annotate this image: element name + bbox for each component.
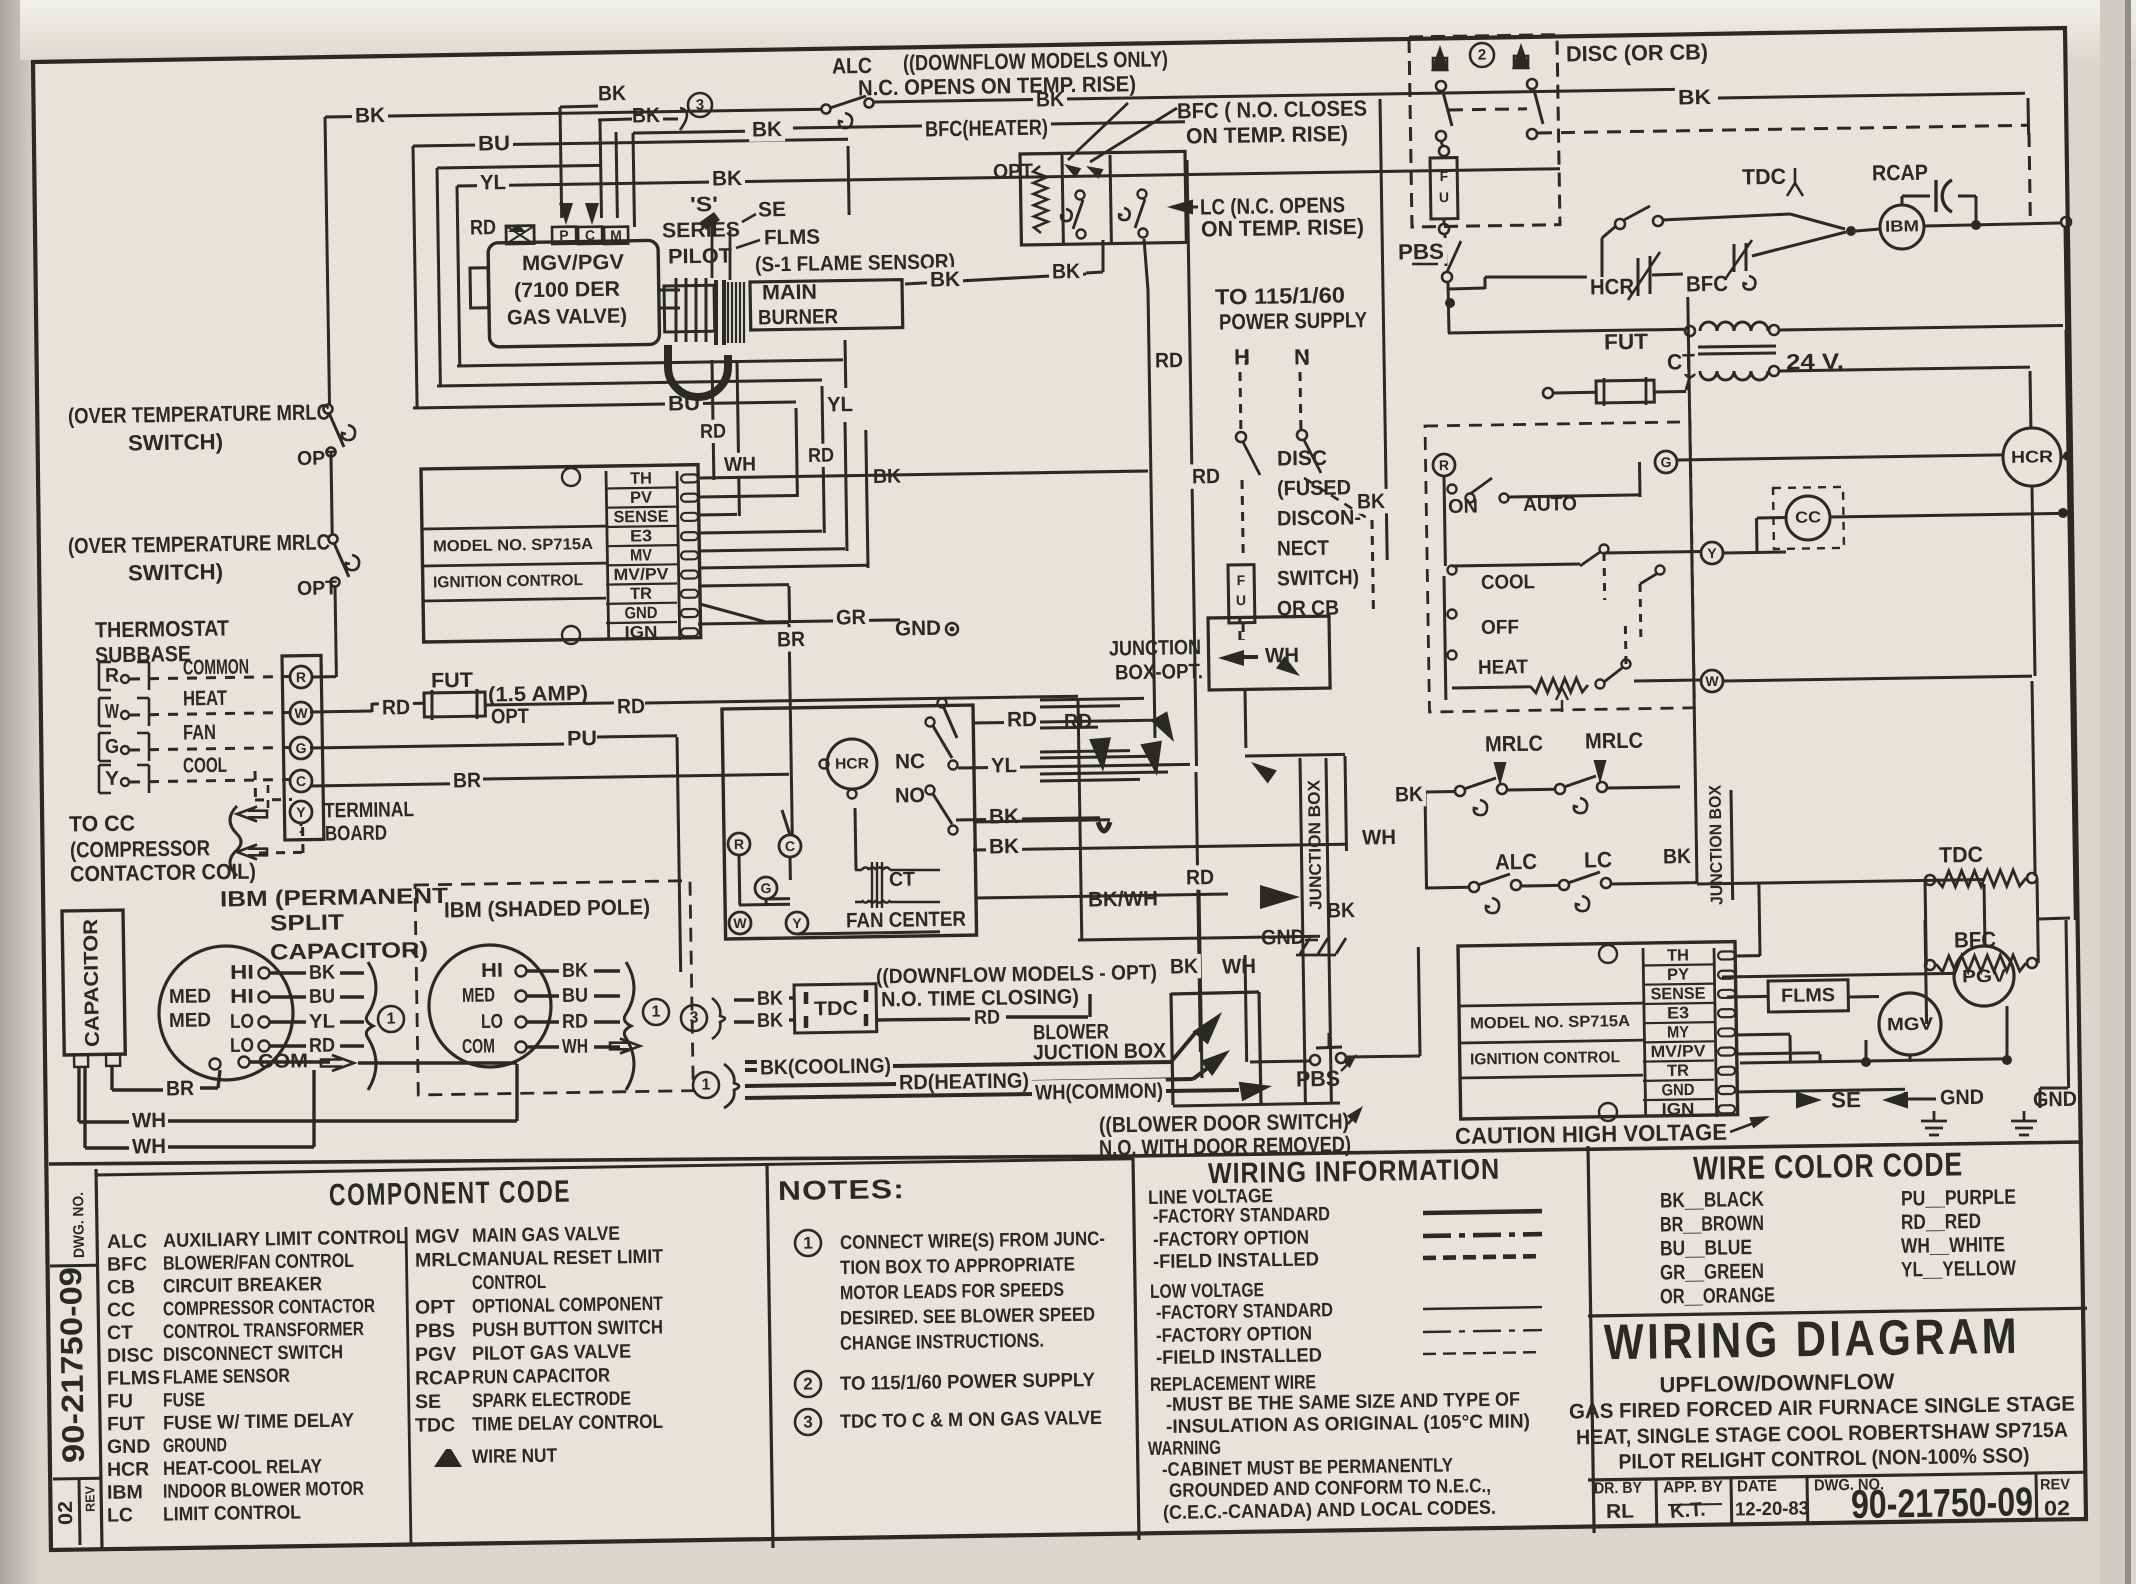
svg-text:ALC: ALC <box>107 1230 147 1253</box>
svg-text:BFC ( N.O. CLOSES: BFC ( N.O. CLOSES <box>1177 96 1367 124</box>
svg-text:W: W <box>105 701 119 723</box>
svg-text:DISC (OR CB): DISC (OR CB) <box>1566 39 1708 66</box>
svg-text:NO: NO <box>895 784 925 807</box>
svg-text:DATE: DATE <box>1737 1478 1778 1496</box>
svg-text:GR__GREEN: GR__GREEN <box>1660 1260 1764 1285</box>
svg-text:FU: FU <box>107 1390 133 1412</box>
svg-text:CC: CC <box>107 1299 136 1321</box>
svg-text:GND: GND <box>107 1436 151 1459</box>
svg-text:RD: RD <box>974 1007 1000 1029</box>
svg-text:LIMIT CONTROL: LIMIT CONTROL <box>163 1501 301 1525</box>
svg-text:GND: GND <box>895 617 941 641</box>
svg-text:WH(COMMON): WH(COMMON) <box>1035 1079 1163 1104</box>
svg-text:N.C. OPENS ON TEMP. RISE): N.C. OPENS ON TEMP. RISE) <box>858 71 1136 100</box>
svg-text:RD: RD <box>470 216 496 239</box>
svg-text:C: C <box>785 838 795 854</box>
svg-text:MED: MED <box>169 985 211 1008</box>
svg-text:RUN CAPACITOR: RUN CAPACITOR <box>472 1364 610 1388</box>
svg-text:OPT: OPT <box>993 160 1033 183</box>
svg-text:TH: TH <box>1667 946 1689 964</box>
svg-text:HI: HI <box>481 960 503 982</box>
svg-text:IBM: IBM <box>107 1481 143 1504</box>
svg-text:TO CC: TO CC <box>69 810 135 836</box>
svg-text:-FACTORY OPTION: -FACTORY OPTION <box>1153 1227 1309 1251</box>
svg-text:WH: WH <box>562 1036 588 1058</box>
svg-text:MODEL NO. SP715A: MODEL NO. SP715A <box>433 536 594 556</box>
svg-text:CT: CT <box>889 869 915 891</box>
svg-text:DISC: DISC <box>1277 447 1327 471</box>
svg-text:MRLC: MRLC <box>1485 731 1543 757</box>
svg-text:LO: LO <box>230 1011 254 1033</box>
svg-text:PBS: PBS <box>1398 239 1444 265</box>
svg-text:CAPACITOR: CAPACITOR <box>80 918 104 1047</box>
svg-text:Y: Y <box>792 915 802 931</box>
svg-text:WH: WH <box>1362 826 1396 850</box>
svg-text:C: C <box>296 773 306 789</box>
svg-text:NC: NC <box>895 750 925 773</box>
svg-text:PU: PU <box>567 727 597 750</box>
svg-text:FUSE W/ TIME DELAY: FUSE W/ TIME DELAY <box>163 1409 354 1434</box>
svg-text:RD: RD <box>617 695 645 718</box>
svg-text:MRLC: MRLC <box>1585 728 1643 754</box>
svg-text:(COMPRESSOR: (COMPRESSOR <box>70 835 210 862</box>
svg-text:LOW VOLTAGE: LOW VOLTAGE <box>1150 1279 1264 1303</box>
svg-text:DESIRED. SEE BLOWER SPEED: DESIRED. SEE BLOWER SPEED <box>840 1304 1095 1330</box>
svg-text:HCR: HCR <box>2011 447 2053 467</box>
svg-text:PV: PV <box>630 489 652 507</box>
svg-text:U: U <box>1439 189 1449 205</box>
svg-text:ON TEMP. RISE): ON TEMP. RISE) <box>1186 121 1348 149</box>
svg-text:PBS: PBS <box>1296 1066 1340 1092</box>
svg-text:OPT: OPT <box>297 447 337 470</box>
svg-text:NOTES:: NOTES: <box>778 1174 905 1206</box>
svg-text:SWITCH): SWITCH) <box>128 429 223 455</box>
svg-text:BK: BK <box>873 466 902 488</box>
svg-text:F: F <box>1237 572 1246 588</box>
svg-text:R: R <box>734 836 744 852</box>
svg-text:TDC: TDC <box>415 1414 455 1437</box>
svg-text:CHANGE INSTRUCTIONS.: CHANGE INSTRUCTIONS. <box>840 1330 1044 1355</box>
svg-text:ALC: ALC <box>1495 849 1537 875</box>
svg-text:HEAT-COOL RELAY: HEAT-COOL RELAY <box>163 1456 322 1480</box>
svg-text:YL: YL <box>991 754 1018 777</box>
svg-text:TDC: TDC <box>1742 164 1786 190</box>
svg-text:TION BOX TO APPROPRIATE: TION BOX TO APPROPRIATE <box>840 1254 1075 1280</box>
svg-text:WH: WH <box>724 453 756 475</box>
svg-text:AUXILIARY LIMIT CONTROL: AUXILIARY LIMIT CONTROL <box>163 1226 407 1252</box>
svg-text:WH: WH <box>132 1109 166 1133</box>
svg-text:TERMINAL: TERMINAL <box>324 798 414 822</box>
svg-text:N: N <box>1294 344 1310 369</box>
svg-text:SWITCH): SWITCH) <box>1277 566 1359 590</box>
svg-text:TDC TO C & M ON GAS VALVE: TDC TO C & M ON GAS VALVE <box>840 1407 1102 1433</box>
svg-text:UPFLOW/DOWNFLOW: UPFLOW/DOWNFLOW <box>1659 1369 1895 1398</box>
svg-text:IGNITION CONTROL: IGNITION CONTROL <box>1470 1049 1620 1068</box>
svg-text:PY: PY <box>1667 966 1689 984</box>
svg-text:CONTROL TRANSFORMER: CONTROL TRANSFORMER <box>163 1318 364 1343</box>
svg-text:RCAP: RCAP <box>415 1367 471 1390</box>
svg-text:DISCONNECT SWITCH: DISCONNECT SWITCH <box>163 1341 343 1366</box>
svg-text:R: R <box>105 665 120 687</box>
svg-text:CB: CB <box>107 1276 136 1298</box>
svg-text:JUNCTION: JUNCTION <box>1109 636 1201 660</box>
svg-text:G: G <box>105 736 119 758</box>
svg-text:MED: MED <box>462 984 495 1007</box>
svg-text:BK: BK <box>598 82 626 105</box>
svg-text:R: R <box>1439 457 1449 473</box>
svg-text:OPT: OPT <box>491 705 530 729</box>
svg-text:SPLIT: SPLIT <box>270 909 345 935</box>
svg-text:3: 3 <box>689 1009 698 1026</box>
svg-text:RD: RD <box>1155 349 1183 372</box>
svg-text:W: W <box>733 915 747 931</box>
svg-text:YL: YL <box>827 393 854 416</box>
svg-text:BK: BK <box>930 268 960 291</box>
svg-text:1: 1 <box>386 1010 395 1027</box>
svg-text:GND: GND <box>624 604 657 623</box>
svg-text:BOX-OPT.: BOX-OPT. <box>1115 660 1203 684</box>
svg-text:PGV: PGV <box>415 1343 457 1366</box>
svg-text:FLMS: FLMS <box>107 1367 160 1390</box>
svg-text:3: 3 <box>696 96 705 113</box>
svg-text:POWER SUPPLY: POWER SUPPLY <box>1219 307 1368 334</box>
svg-text:CAPACITOR): CAPACITOR) <box>270 937 428 964</box>
svg-text:-FACTORY STANDARD: -FACTORY STANDARD <box>1153 1203 1330 1228</box>
svg-text:COMPONENT CODE: COMPONENT CODE <box>329 1174 572 1213</box>
svg-text:R: R <box>296 669 306 685</box>
svg-text:WH: WH <box>132 1135 166 1159</box>
svg-text:C: C <box>585 227 595 243</box>
svg-text:OPT: OPT <box>415 1296 456 1319</box>
svg-text:BR: BR <box>166 1077 194 1100</box>
svg-text:WIRING DIAGRAM: WIRING DIAGRAM <box>1604 1308 2021 1371</box>
svg-text:Y: Y <box>105 768 120 790</box>
svg-text:FLMS: FLMS <box>764 226 820 250</box>
svg-text:DISC: DISC <box>107 1344 154 1367</box>
svg-text:CONTACTOR COIL): CONTACTOR COIL) <box>70 859 256 887</box>
svg-text:YL: YL <box>480 171 507 194</box>
svg-text:INDOOR BLOWER MOTOR: INDOOR BLOWER MOTOR <box>163 1478 364 1503</box>
svg-text:REV: REV <box>2040 1476 2070 1493</box>
svg-text:TR: TR <box>1667 1062 1689 1080</box>
svg-text:((DOWNFLOW MODELS - OPT): ((DOWNFLOW MODELS - OPT) <box>876 961 1157 988</box>
svg-text:02: 02 <box>55 1501 77 1525</box>
svg-text:COOL: COOL <box>183 754 227 778</box>
svg-text:MAIN GAS VALVE: MAIN GAS VALVE <box>472 1223 620 1247</box>
svg-text:LC: LC <box>1584 847 1612 872</box>
svg-text:HEAT: HEAT <box>1478 656 1528 679</box>
svg-text:HEAT: HEAT <box>183 687 227 711</box>
svg-text:LC: LC <box>107 1504 133 1526</box>
svg-text:ON TEMP. RISE): ON TEMP. RISE) <box>1201 214 1364 242</box>
svg-text:COMMON: COMMON <box>183 655 249 679</box>
svg-text:RL: RL <box>1606 1501 1634 1523</box>
svg-text:-FACTORY OPTION: -FACTORY OPTION <box>1156 1323 1312 1347</box>
svg-text:IGNITION CONTROL: IGNITION CONTROL <box>433 572 583 591</box>
svg-text:E3: E3 <box>630 527 652 545</box>
svg-text:BK: BK <box>712 167 742 190</box>
svg-text:E3: E3 <box>1667 1004 1689 1022</box>
svg-text:BK/WH: BK/WH <box>1088 887 1158 911</box>
svg-text:-FIELD INSTALLED: -FIELD INSTALLED <box>1156 1344 1322 1369</box>
svg-text:DISCON-: DISCON- <box>1277 506 1361 530</box>
svg-text:RD(HEATING): RD(HEATING) <box>899 1069 1029 1094</box>
svg-text:THERMOSTAT: THERMOSTAT <box>95 615 230 642</box>
svg-text:BU: BU <box>478 132 510 155</box>
svg-text:TH: TH <box>630 469 652 487</box>
svg-text:G: G <box>760 880 771 896</box>
svg-text:F: F <box>1440 168 1449 184</box>
svg-text:DWG. NO.: DWG. NO. <box>70 1192 88 1258</box>
svg-text:BK: BK <box>989 805 1019 828</box>
svg-text:OPTIONAL COMPONENT: OPTIONAL COMPONENT <box>472 1293 663 1318</box>
svg-text:CONTROL: CONTROL <box>472 1271 546 1294</box>
svg-text:TO 115/1/60: TO 115/1/60 <box>1215 282 1345 309</box>
svg-text:BFC: BFC <box>107 1253 147 1276</box>
svg-text:RD: RD <box>309 1035 335 1057</box>
svg-text:BK: BK <box>632 104 660 127</box>
svg-text:BR: BR <box>777 628 805 651</box>
svg-text:SE: SE <box>1831 1087 1861 1112</box>
svg-text:HCR: HCR <box>1590 274 1634 300</box>
svg-text:PBS: PBS <box>415 1320 455 1343</box>
svg-text:FUT: FUT <box>431 669 474 693</box>
svg-text:FUSE: FUSE <box>163 1389 205 1412</box>
svg-text:MRLC: MRLC <box>415 1249 472 1272</box>
svg-text:MV: MV <box>630 546 652 564</box>
svg-text:BK: BK <box>1663 845 1691 868</box>
svg-text:PILOT GAS VALVE: PILOT GAS VALVE <box>472 1341 631 1365</box>
svg-text:CT: CT <box>1667 349 1696 374</box>
svg-text:TDC: TDC <box>1939 842 1983 868</box>
svg-text:BK: BK <box>989 835 1019 858</box>
svg-text:SUBBASE: SUBBASE <box>95 641 191 668</box>
svg-text:1: 1 <box>803 1233 813 1252</box>
svg-text:NECT: NECT <box>1277 537 1330 561</box>
svg-text:12-20-83: 12-20-83 <box>1735 1498 1809 1520</box>
svg-text:GR: GR <box>836 606 866 629</box>
svg-text:BK: BK <box>1170 955 1198 978</box>
svg-text:K.T.: K.T. <box>1669 1499 1706 1523</box>
svg-text:IGN: IGN <box>1661 1100 1694 1119</box>
svg-text:BK: BK <box>1327 899 1355 922</box>
svg-text:N.O. WITH DOOR REMOVED): N.O. WITH DOOR REMOVED) <box>1099 1132 1351 1161</box>
svg-text:COMPRESSOR CONTACTOR: COMPRESSOR CONTACTOR <box>163 1295 375 1320</box>
svg-text:RD: RD <box>382 696 410 719</box>
svg-text:Y: Y <box>1707 545 1717 561</box>
svg-text:3: 3 <box>803 1412 813 1431</box>
svg-text:MED: MED <box>169 1009 211 1032</box>
svg-text:RD: RD <box>700 421 726 443</box>
svg-text:(7100 DER: (7100 DER <box>514 278 620 303</box>
svg-text:BK(COOLING): BK(COOLING) <box>760 1054 891 1079</box>
svg-text:FAN CENTER: FAN CENTER <box>846 908 966 933</box>
svg-text:90-21750-09: 90-21750-09 <box>53 1267 91 1464</box>
svg-text:(S-1 FLAME SENSOR): (S-1 FLAME SENSOR) <box>755 250 955 276</box>
svg-text:GND: GND <box>1261 926 1305 950</box>
svg-text:YL__YELLOW: YL__YELLOW <box>1901 1257 2016 1282</box>
svg-text:LO: LO <box>481 1011 503 1033</box>
svg-text:CC: CC <box>1795 509 1822 526</box>
svg-text:BK: BK <box>1678 86 1711 110</box>
svg-text:(OVER TEMPERATURE MRLC: (OVER TEMPERATURE MRLC <box>68 529 330 558</box>
svg-text:BK: BK <box>1395 783 1423 806</box>
svg-text:(FUSED: (FUSED <box>1277 476 1351 500</box>
svg-text:WARNING: WARNING <box>1148 1437 1221 1460</box>
svg-text:SENSE: SENSE <box>613 508 668 527</box>
svg-text:MODEL NO. SP715A: MODEL NO. SP715A <box>1470 1013 1631 1033</box>
svg-text:FLMS: FLMS <box>1781 985 1835 1007</box>
svg-text:REV: REV <box>82 1486 97 1513</box>
svg-text:MOTOR LEADS FOR SPEEDS: MOTOR LEADS FOR SPEEDS <box>840 1279 1064 1305</box>
svg-text:BFC: BFC <box>1686 271 1728 297</box>
svg-text:RCAP: RCAP <box>1872 160 1928 186</box>
svg-text:2: 2 <box>1478 46 1487 63</box>
svg-text:G: G <box>295 740 306 756</box>
svg-text:BU__BLUE: BU__BLUE <box>1660 1236 1752 1260</box>
svg-text:BK: BK <box>1357 490 1385 513</box>
svg-text:(OVER TEMPERATURE MRLC: (OVER TEMPERATURE MRLC <box>68 399 330 428</box>
svg-text:CIRCUIT BREAKER: CIRCUIT BREAKER <box>163 1273 322 1297</box>
svg-text:APP. BY: APP. BY <box>1663 1479 1724 1497</box>
svg-text:IBM: IBM <box>1885 218 1919 236</box>
svg-text:COM: COM <box>462 1035 495 1058</box>
svg-text:OR__ORANGE: OR__ORANGE <box>1660 1284 1775 1309</box>
svg-text:BK: BK <box>757 988 784 1010</box>
svg-text:02: 02 <box>2044 1497 2070 1520</box>
svg-text:SPARK ELECTRODE: SPARK ELECTRODE <box>472 1388 631 1412</box>
svg-text:BURNER: BURNER <box>758 305 838 329</box>
svg-text:BK__BLACK: BK__BLACK <box>1660 1188 1764 1213</box>
svg-text:TO 115/1/60 POWER SUPPLY: TO 115/1/60 POWER SUPPLY <box>840 1369 1095 1395</box>
svg-text:LO: LO <box>230 1035 254 1057</box>
svg-text:WH: WH <box>1222 955 1256 979</box>
svg-text:BK: BK <box>562 960 589 982</box>
svg-text:SENSE: SENSE <box>1650 985 1705 1004</box>
svg-text:WH__WHITE: WH__WHITE <box>1901 1233 2005 1258</box>
svg-text:PILOT: PILOT <box>668 244 733 268</box>
svg-text:JUNCTION BOX: JUNCTION BOX <box>1706 784 1727 905</box>
svg-text:RD: RD <box>1186 866 1214 889</box>
svg-text:RD__RED: RD__RED <box>1901 1210 1981 1234</box>
svg-text:W: W <box>294 705 308 721</box>
svg-text:P: P <box>559 227 569 243</box>
svg-text:FUT: FUT <box>1604 329 1649 355</box>
svg-text:FAN: FAN <box>183 721 216 745</box>
svg-text:WIRE COLOR CODE: WIRE COLOR CODE <box>1693 1145 1964 1186</box>
svg-text:M: M <box>610 227 622 243</box>
svg-text:RD: RD <box>1192 465 1220 488</box>
svg-text:GND: GND <box>1661 1081 1694 1100</box>
svg-text:MAIN: MAIN <box>762 281 817 305</box>
svg-text:YL: YL <box>309 1011 335 1033</box>
svg-text:HCR: HCR <box>835 755 869 773</box>
svg-text:TDC: TDC <box>814 998 858 1021</box>
svg-text:GAS VALVE): GAS VALVE) <box>507 305 627 330</box>
svg-text:CONNECT WIRE(S) FROM JUNC-: CONNECT WIRE(S) FROM JUNC- <box>840 1228 1105 1254</box>
svg-text:BK: BK <box>355 104 385 127</box>
svg-text:SE: SE <box>415 1391 441 1413</box>
svg-text:IBM (SHADED POLE): IBM (SHADED POLE) <box>444 894 650 922</box>
svg-text:HCR: HCR <box>107 1458 150 1481</box>
svg-text:U: U <box>1236 592 1246 608</box>
svg-text:BK: BK <box>757 1010 784 1032</box>
svg-text:BU: BU <box>309 986 335 1008</box>
svg-text:CT: CT <box>107 1322 133 1344</box>
svg-text:BK: BK <box>309 962 336 984</box>
svg-text:Y: Y <box>296 804 306 820</box>
svg-text:WIRE NUT: WIRE NUT <box>472 1445 557 1468</box>
svg-text:COOL: COOL <box>1481 571 1535 594</box>
svg-text:-FACTORY STANDARD: -FACTORY STANDARD <box>1156 1299 1333 1324</box>
svg-text:BU: BU <box>562 985 588 1007</box>
svg-text:FUT: FUT <box>107 1413 145 1436</box>
svg-text:MY: MY <box>1667 1023 1689 1041</box>
svg-text:HI: HI <box>230 962 254 984</box>
svg-text:90-21750-09: 90-21750-09 <box>1851 1480 2034 1527</box>
svg-text:TR: TR <box>630 585 652 603</box>
svg-text:1: 1 <box>701 1076 710 1093</box>
svg-text:PUSH BUTTON SWITCH: PUSH BUTTON SWITCH <box>472 1316 663 1341</box>
svg-text:BR: BR <box>453 769 481 792</box>
svg-text:2: 2 <box>803 1374 813 1393</box>
svg-text:CAUTION HIGH VOLTAGE: CAUTION HIGH VOLTAGE <box>1455 1119 1727 1149</box>
svg-text:MV/PV: MV/PV <box>1650 1042 1705 1061</box>
svg-text:BK: BK <box>752 118 782 141</box>
svg-text:OPT: OPT <box>297 577 337 600</box>
svg-text:G: G <box>1660 454 1671 470</box>
svg-text:HI: HI <box>230 986 254 1008</box>
svg-text:MGV: MGV <box>415 1225 460 1248</box>
svg-text:BR__BROWN: BR__BROWN <box>1660 1212 1764 1237</box>
svg-text:TIME DELAY CONTROL: TIME DELAY CONTROL <box>472 1411 663 1436</box>
svg-text:SE: SE <box>758 198 786 221</box>
svg-text:BK: BK <box>1052 260 1080 283</box>
svg-text:W: W <box>1705 673 1719 689</box>
svg-text:GROUND: GROUND <box>163 1434 227 1457</box>
svg-text:BFC(HEATER): BFC(HEATER) <box>925 115 1048 142</box>
svg-text:JUNCTION BOX: JUNCTION BOX <box>1304 779 1325 910</box>
svg-text:BOARD: BOARD <box>325 822 387 846</box>
svg-text:OFF: OFF <box>1481 616 1519 639</box>
svg-text:IGN: IGN <box>624 623 657 642</box>
svg-text:FLAME SENSOR: FLAME SENSOR <box>163 1365 290 1389</box>
svg-text:-FIELD INSTALLED: -FIELD INSTALLED <box>1153 1248 1319 1273</box>
svg-text:H: H <box>1234 344 1250 369</box>
svg-text:PGV: PGV <box>1962 966 2006 987</box>
svg-text:MANUAL RESET LIMIT: MANUAL RESET LIMIT <box>472 1246 663 1271</box>
svg-text:MV/PV: MV/PV <box>613 565 668 584</box>
svg-text:SWITCH): SWITCH) <box>128 559 223 585</box>
svg-text:1: 1 <box>651 1003 660 1020</box>
svg-text:RD: RD <box>562 1011 588 1033</box>
svg-text:BLOWER/FAN CONTROL: BLOWER/FAN CONTROL <box>163 1250 354 1275</box>
svg-text:RD: RD <box>1007 708 1037 731</box>
svg-text:DR. BY: DR. BY <box>1594 1480 1643 1498</box>
svg-text:MGV/PGV: MGV/PGV <box>522 251 624 276</box>
svg-text:MGV: MGV <box>1887 1014 1933 1035</box>
svg-text:PU__PURPLE: PU__PURPLE <box>1901 1186 2016 1211</box>
svg-text:GND: GND <box>1940 1086 1984 1110</box>
svg-text:RD: RD <box>808 445 834 467</box>
